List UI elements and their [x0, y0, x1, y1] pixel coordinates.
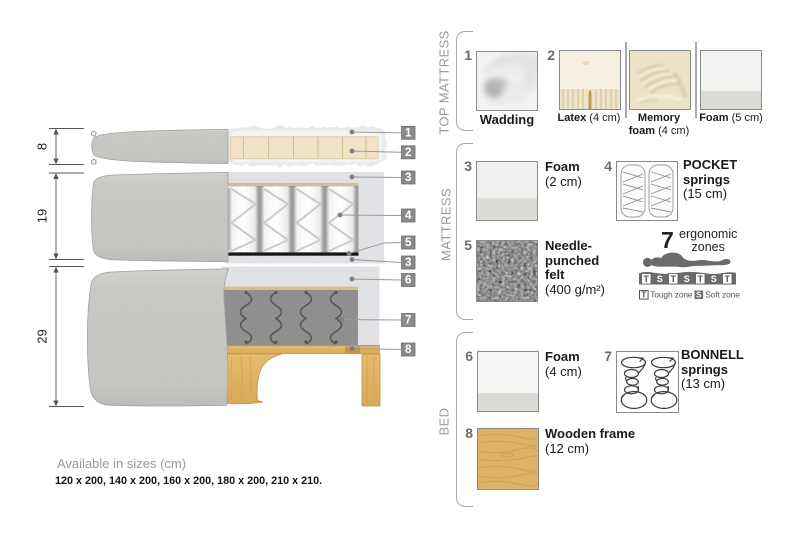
svg-text:1: 1 — [405, 127, 412, 139]
svg-text:S: S — [684, 274, 690, 284]
svg-text:T: T — [671, 274, 677, 284]
svg-text:19: 19 — [34, 209, 49, 223]
svg-text:S: S — [711, 274, 717, 284]
svg-text:T: T — [644, 274, 650, 284]
svg-text:Tough zone: Tough zone — [650, 290, 693, 300]
svg-text:8: 8 — [405, 344, 412, 356]
svg-text:3: 3 — [405, 257, 411, 269]
svg-text:5: 5 — [405, 237, 412, 249]
svg-text:T: T — [698, 274, 704, 284]
svg-text:29: 29 — [34, 329, 49, 343]
svg-text:S: S — [696, 290, 702, 300]
svg-text:8: 8 — [34, 143, 49, 150]
svg-text:T: T — [725, 274, 731, 284]
svg-text:6: 6 — [405, 275, 411, 287]
svg-text:Soft zone: Soft zone — [705, 290, 740, 300]
svg-text:4: 4 — [405, 210, 412, 222]
svg-text:2: 2 — [405, 147, 411, 159]
svg-text:3: 3 — [405, 172, 411, 184]
svg-text:S: S — [657, 274, 663, 284]
svg-text:7: 7 — [405, 315, 411, 327]
